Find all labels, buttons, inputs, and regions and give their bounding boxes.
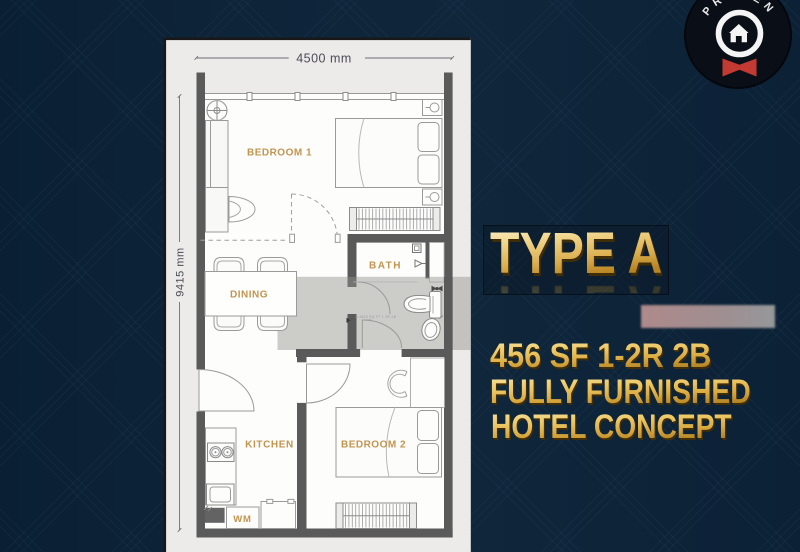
svg-text:BEDROOM 2: BEDROOM 2 — [341, 440, 406, 451]
svg-text:WM: WM — [233, 514, 251, 525]
svg-text:DINING: DINING — [230, 290, 268, 301]
svg-text:9415 mm: 9415 mm — [175, 247, 187, 296]
svg-text:BATH: BATH — [369, 261, 402, 272]
svg-text:4500 mm: 4500 mm — [296, 52, 352, 66]
svg-text:BEDROOM 1: BEDROOM 1 — [247, 148, 312, 159]
svg-text:B 4500 SQ FT 1 2R 2B: B 4500 SQ FT 1 2R 2B — [356, 315, 397, 319]
svg-text:KITCHEN: KITCHEN — [245, 440, 294, 451]
